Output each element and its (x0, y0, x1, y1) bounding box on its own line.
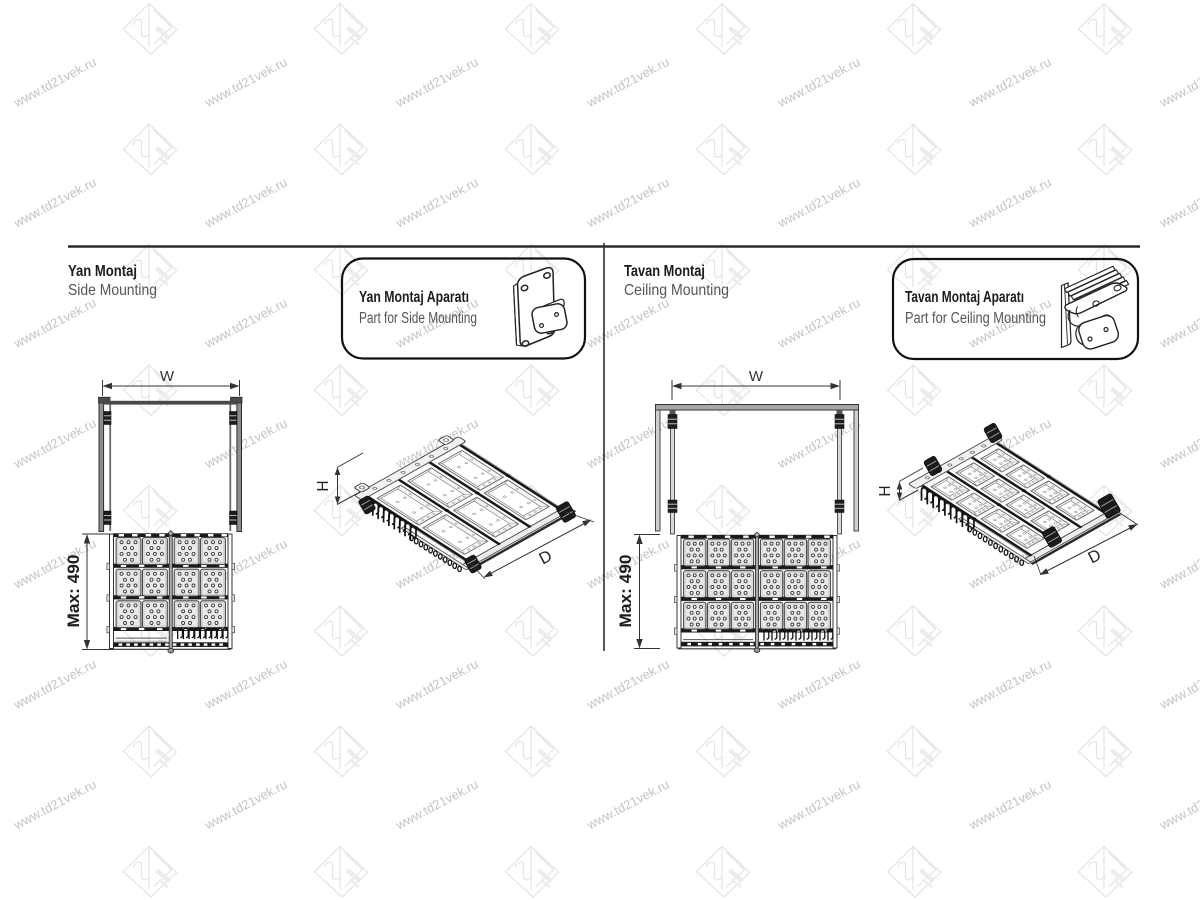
svg-text:Tavan Montaj: Tavan Montaj (624, 263, 705, 280)
svg-text:Part for Side Mounting: Part for Side Mounting (359, 310, 477, 327)
svg-text:Yan Montaj: Yan Montaj (68, 263, 137, 280)
svg-text:H: H (315, 480, 332, 491)
svg-text:Yan Montaj Aparatı: Yan Montaj Aparatı (359, 289, 469, 306)
svg-text:H: H (877, 485, 894, 496)
svg-text:Max: 490: Max: 490 (65, 555, 83, 628)
svg-text:Ceiling Mounting: Ceiling Mounting (624, 282, 729, 299)
svg-text:W: W (749, 368, 764, 385)
svg-text:Max: 490: Max: 490 (617, 555, 635, 628)
svg-text:Tavan Montaj Aparatı: Tavan Montaj Aparatı (905, 289, 1024, 306)
svg-text:Side Mounting: Side Mounting (68, 282, 157, 299)
svg-text:Part for Ceiling Mounting: Part for Ceiling Mounting (905, 310, 1046, 327)
svg-text:W: W (160, 368, 175, 385)
